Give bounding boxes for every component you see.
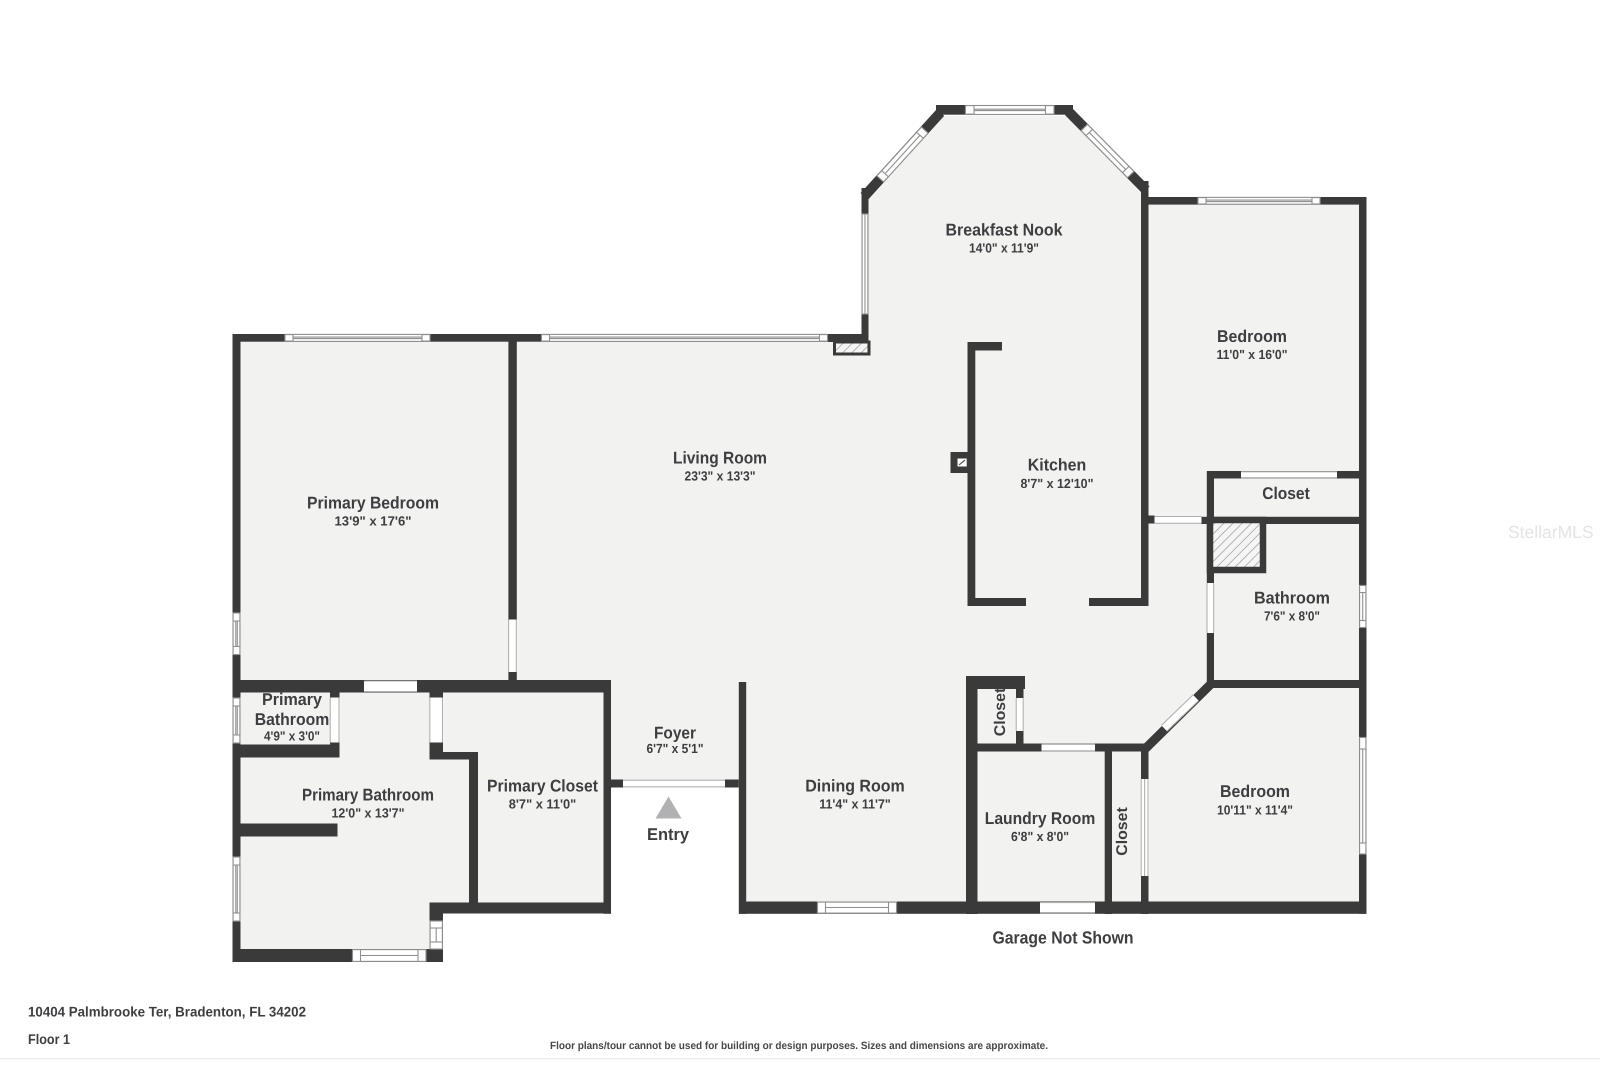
svg-text:Breakfast Nook: Breakfast Nook [946,221,1064,240]
svg-text:StellarMLS: StellarMLS [1508,522,1594,542]
svg-text:Dining Room: Dining Room [805,777,905,796]
svg-text:Bathroom: Bathroom [255,710,330,729]
svg-text:Bedroom: Bedroom [1217,327,1287,346]
svg-text:Living Room: Living Room [673,449,767,468]
svg-text:10404 Palmbrooke Ter, Bradento: 10404 Palmbrooke Ter, Bradenton, FL 3420… [28,1004,306,1020]
svg-text:8'7" x 11'0": 8'7" x 11'0" [509,797,577,812]
svg-text:Closet: Closet [992,688,1009,737]
svg-text:Entry: Entry [647,825,690,844]
svg-text:Primary Bathroom: Primary Bathroom [302,786,434,805]
svg-text:6'7" x 5'1": 6'7" x 5'1" [647,741,704,756]
svg-text:Primary Bedroom: Primary Bedroom [307,494,439,513]
svg-text:Foyer: Foyer [654,724,696,743]
svg-text:12'0" x 13'7": 12'0" x 13'7" [332,806,405,821]
svg-text:Kitchen: Kitchen [1028,456,1087,475]
svg-text:Laundry Room: Laundry Room [985,809,1096,828]
svg-text:4'9" x 3'0": 4'9" x 3'0" [264,729,320,744]
svg-text:Closet: Closet [1114,807,1131,856]
svg-text:Bedroom: Bedroom [1220,782,1290,801]
svg-text:13'9" x 17'6": 13'9" x 17'6" [335,514,412,529]
svg-text:Bathroom: Bathroom [1254,589,1330,608]
svg-text:10'11" x 11'4": 10'11" x 11'4" [1217,803,1293,818]
svg-text:Primary: Primary [262,690,323,709]
svg-text:Floor 1: Floor 1 [28,1031,70,1047]
svg-text:7'6" x 8'0": 7'6" x 8'0" [1264,609,1320,624]
svg-text:Primary Closet: Primary Closet [487,777,598,796]
svg-text:Floor plans/tour cannot be use: Floor plans/tour cannot be used for buil… [550,1040,1048,1052]
svg-text:11'4" x 11'7": 11'4" x 11'7" [819,797,891,812]
svg-text:Closet: Closet [1262,484,1310,503]
svg-text:8'7" x 12'10": 8'7" x 12'10" [1021,476,1094,491]
svg-text:14'0" x 11'9": 14'0" x 11'9" [969,241,1039,256]
svg-text:6'8" x 8'0": 6'8" x 8'0" [1011,829,1069,844]
svg-text:23'3" x 13'3": 23'3" x 13'3" [685,469,756,484]
svg-text:Garage Not Shown: Garage Not Shown [993,928,1134,948]
svg-text:11'0" x 16'0": 11'0" x 16'0" [1217,347,1288,362]
